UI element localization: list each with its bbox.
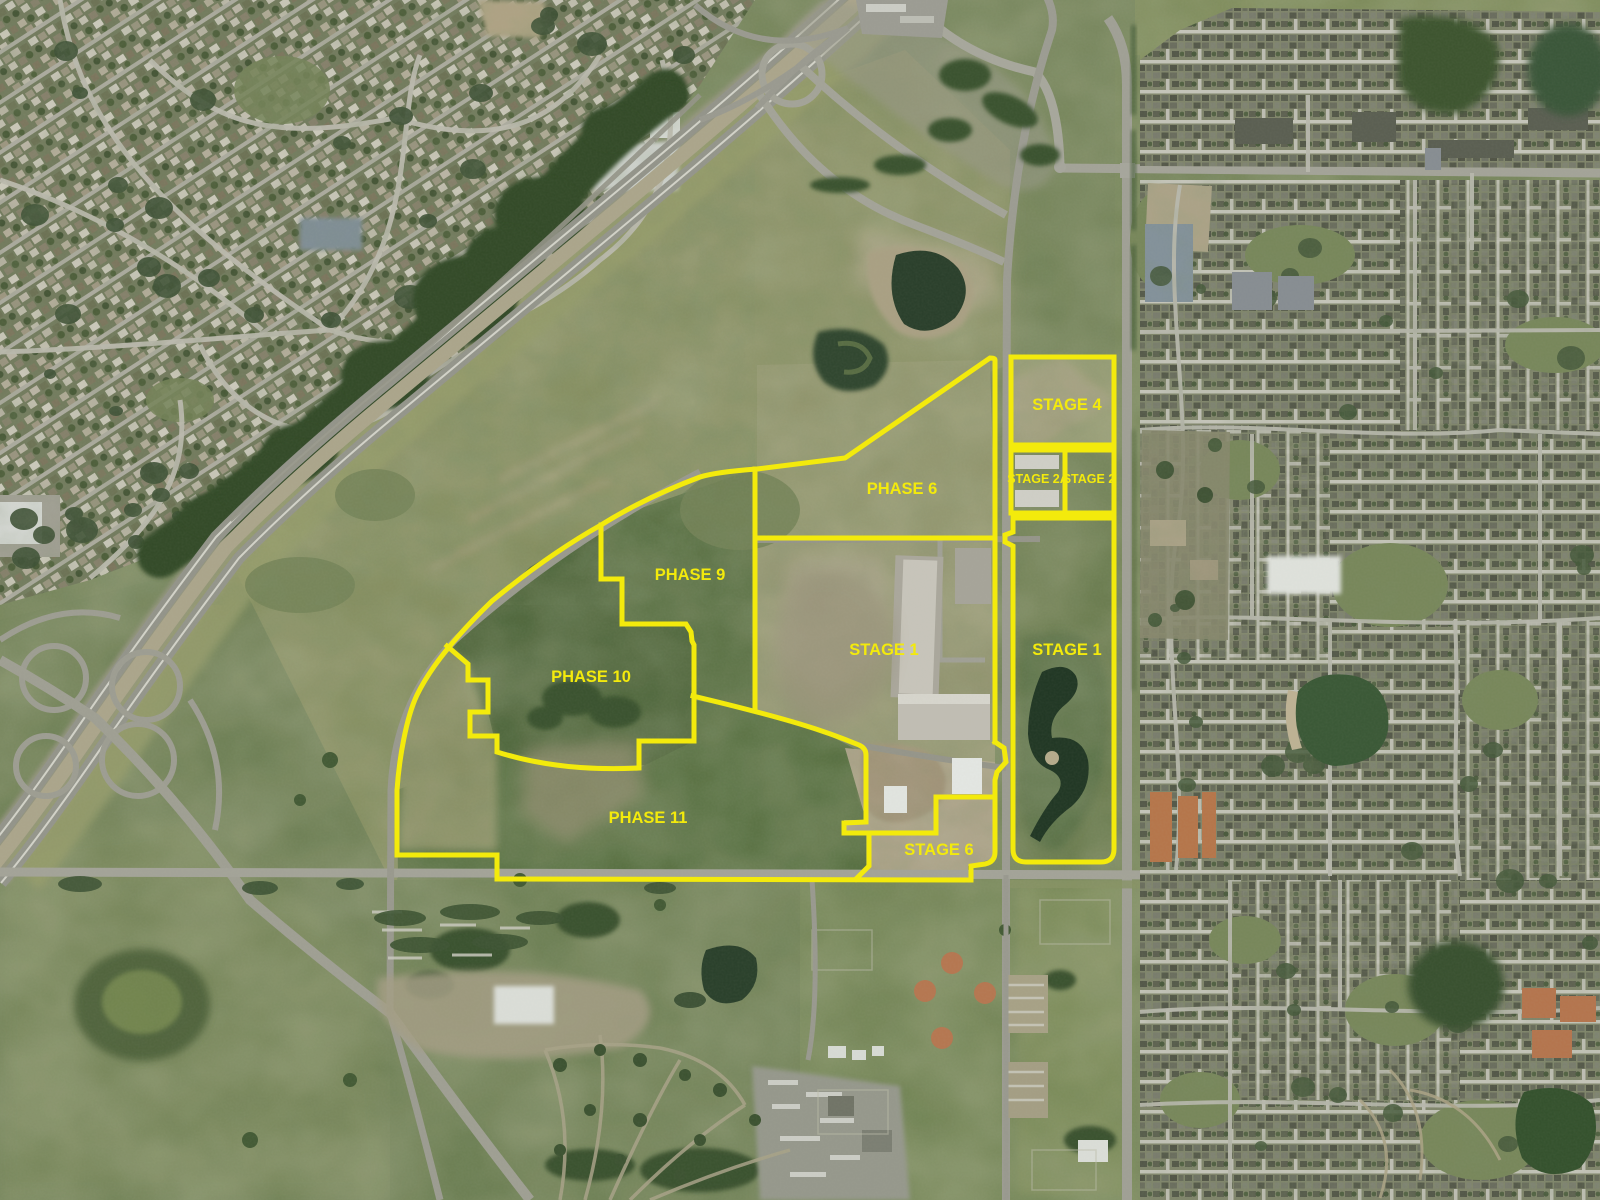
svg-text:PHASE 11: PHASE 11 (609, 809, 688, 827)
svg-text:PHASE 9: PHASE 9 (655, 566, 726, 584)
svg-text:STAGE 2: STAGE 2 (1063, 472, 1116, 486)
svg-text:PHASE 6: PHASE 6 (867, 480, 938, 498)
svg-text:STAGE 6: STAGE 6 (904, 841, 973, 859)
svg-text:STAGE 2A: STAGE 2A (1007, 472, 1069, 486)
svg-text:STAGE 1: STAGE 1 (849, 641, 918, 659)
svg-text:STAGE 4: STAGE 4 (1032, 396, 1102, 414)
svg-text:STAGE 1: STAGE 1 (1032, 641, 1101, 659)
svg-text:PHASE 10: PHASE 10 (551, 668, 631, 686)
